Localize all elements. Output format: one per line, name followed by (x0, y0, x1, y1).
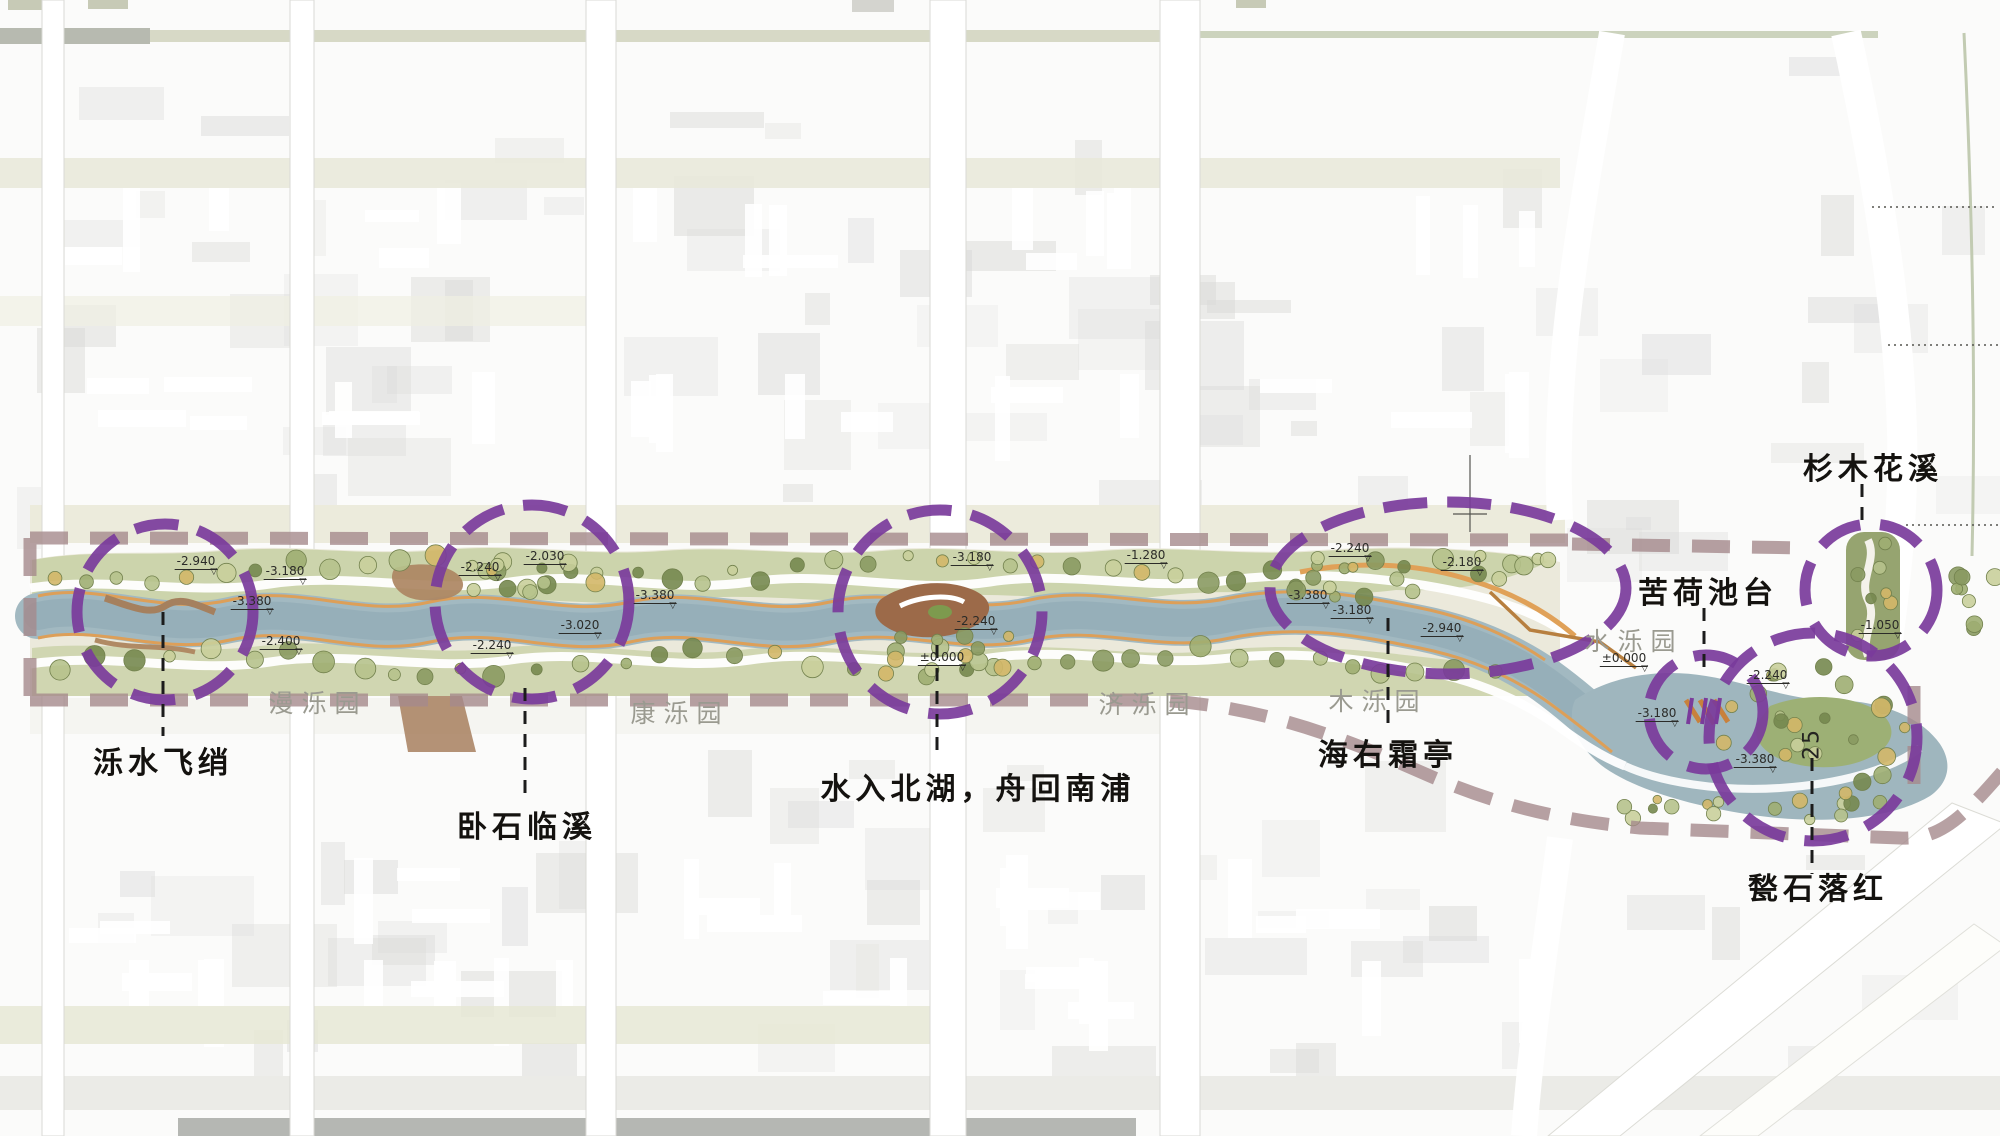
elevation-marker: -3.380▽ (1734, 753, 1777, 775)
elevation-marker: -2.240▽ (1747, 669, 1790, 691)
elevation-marker: -3.020▽ (559, 619, 602, 641)
node-label-haiyou-shuangting: 海右霜亭 (1318, 730, 1458, 774)
elevation-marker: -2.030▽ (524, 550, 567, 572)
node-label-shanmu-huaxi: 杉木花溪 (1803, 444, 1943, 488)
elevation-marker: -2.240▽ (471, 639, 514, 661)
node-label-zhoushi-luohong: 甃石落红 (1748, 864, 1888, 908)
node-label-woshi-linxi: 卧石临溪 (457, 802, 597, 846)
elevation-marker: -3.180▽ (264, 565, 307, 587)
park-label-mu-luo-yuan: 木泺园 (1328, 682, 1427, 718)
elevation-marker: -2.180▽ (1441, 556, 1484, 578)
road-station-label: 25 (1800, 728, 1825, 760)
elevation-marker: -3.180▽ (951, 551, 994, 573)
elevation-marker: -2.240▽ (1329, 542, 1372, 564)
elevation-marker: -1.050▽ (1859, 619, 1902, 641)
park-label-ji-luo-yuan: 济泺园 (1098, 685, 1197, 721)
elevation-marker: -3.380▽ (634, 589, 677, 611)
masterplan-canvas: 泺水飞绡卧石临溪水入北湖，舟回南浦海右霜亭苦荷池台甃石落红杉木花溪漫泺园康泺园济… (0, 0, 2000, 1136)
elevation-marker: -3.380▽ (1287, 589, 1330, 611)
node-label-kuhe-chitai: 苦荷池台 (1638, 568, 1778, 612)
elevation-marker: -3.380▽ (231, 595, 274, 617)
elevation-marker: -2.940▽ (175, 555, 218, 577)
elevation-marker: ±0.000▽ (1600, 652, 1648, 674)
elevation-marker: -2.940▽ (1421, 622, 1464, 644)
node-label-luoshui-feixiao: 泺水飞绡 (93, 738, 233, 782)
elevation-marker: -1.280▽ (1125, 549, 1168, 571)
elevation-marker: -2.240▽ (955, 615, 998, 637)
elevation-marker: -2.240▽ (459, 561, 502, 583)
park-label-kang-luo-yuan: 康泺园 (630, 694, 729, 730)
elevation-marker: -2.400▽ (260, 635, 303, 657)
annotation-layer: 泺水飞绡卧石临溪水入北湖，舟回南浦海右霜亭苦荷池台甃石落红杉木花溪漫泺园康泺园济… (0, 0, 2000, 1136)
elevation-marker: -3.180▽ (1331, 604, 1374, 626)
elevation-marker: -3.180▽ (1636, 707, 1679, 729)
park-label-man-luo-yuan: 漫泺园 (268, 684, 367, 720)
elevation-marker: ±0.000▽ (918, 651, 966, 673)
node-label-shuiru-beihu: 水入北湖，舟回南浦 (821, 764, 1136, 808)
